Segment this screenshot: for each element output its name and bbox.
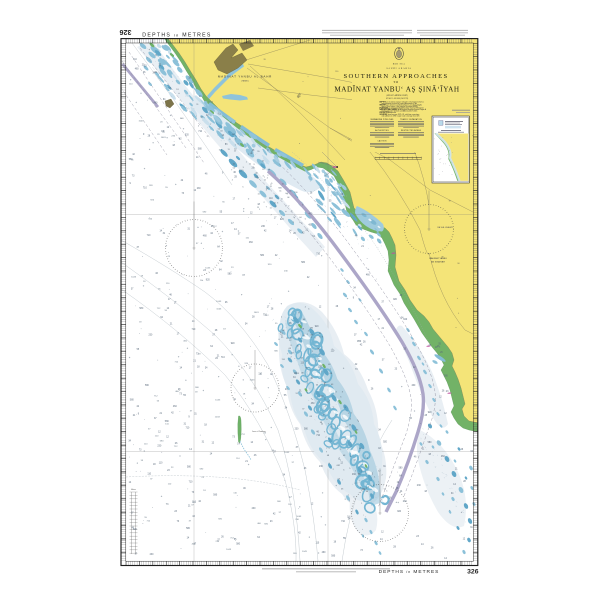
- svg-text:1043: 1043: [139, 121, 145, 123]
- svg-text:1043: 1043: [215, 400, 221, 402]
- svg-text:TO: TO: [393, 80, 398, 84]
- svg-text:RED SEA: RED SEA: [393, 63, 406, 66]
- svg-text:TRAFFIC SEPARATION: TRAFFIC SEPARATION: [400, 118, 422, 121]
- svg-text:1043: 1043: [131, 276, 137, 278]
- svg-text:1043: 1043: [208, 102, 214, 104]
- svg-text:MADĪNAT YANBU‘ AŞ ŞINĀ‘ĪYAH: MADĪNAT YANBU‘ AŞ ŞINĀ‘ĪYAH: [334, 85, 459, 94]
- svg-text:1043: 1043: [250, 380, 256, 382]
- svg-text:12: 12: [348, 139, 350, 141]
- svg-text:1043: 1043: [216, 308, 222, 310]
- svg-text:1043: 1043: [161, 137, 167, 139]
- svg-text:1043: 1043: [215, 416, 221, 418]
- svg-text:1043: 1043: [294, 373, 300, 375]
- svg-text:SUBMARINE PIPELINES: SUBMARINE PIPELINES: [370, 118, 394, 121]
- svg-text:SAUDI ARABIA: SAUDI ARABIA: [386, 67, 411, 70]
- svg-text:MADINAT YANBU: MADINAT YANBU: [429, 257, 447, 260]
- svg-text:(YANBO): (YANBO): [241, 80, 249, 83]
- svg-text:110: 110: [335, 71, 338, 73]
- svg-text:1043: 1043: [284, 452, 290, 454]
- svg-text:SCALE 1:100 000 (24°05’N): SCALE 1:100 000 (24°05’N): [386, 97, 409, 100]
- svg-text:34: 34: [457, 263, 459, 265]
- svg-text:326: 326: [120, 28, 132, 37]
- svg-text:AUTHORITIES: AUTHORITIES: [375, 129, 389, 132]
- svg-text:1043: 1043: [296, 516, 302, 518]
- svg-text:1043: 1043: [254, 312, 260, 314]
- svg-text:1043: 1043: [205, 268, 211, 270]
- svg-text:99: 99: [449, 201, 451, 203]
- svg-text:CAUTION: CAUTION: [378, 140, 388, 143]
- svg-text:RESTRICTED AREAS: RESTRICTED AREAS: [401, 129, 422, 132]
- svg-text:1043: 1043: [226, 549, 232, 551]
- svg-text:RA S AL KHAWR: RA S AL KHAWR: [437, 226, 453, 229]
- svg-text:(SINAIYA MINING PORT): (SINAIYA MINING PORT): [386, 94, 408, 97]
- svg-text:1043: 1043: [216, 301, 222, 303]
- svg-text:1043: 1043: [302, 551, 308, 553]
- svg-text:99: 99: [264, 59, 266, 61]
- svg-text:MADINAT YANBU AL BAHR: MADINAT YANBU AL BAHR: [218, 75, 272, 79]
- svg-text:AS SINAIYAH: AS SINAIYAH: [431, 261, 445, 264]
- svg-text:SOUTHERN APPROACHES: SOUTHERN APPROACHES: [344, 73, 449, 80]
- svg-text:326: 326: [467, 568, 479, 575]
